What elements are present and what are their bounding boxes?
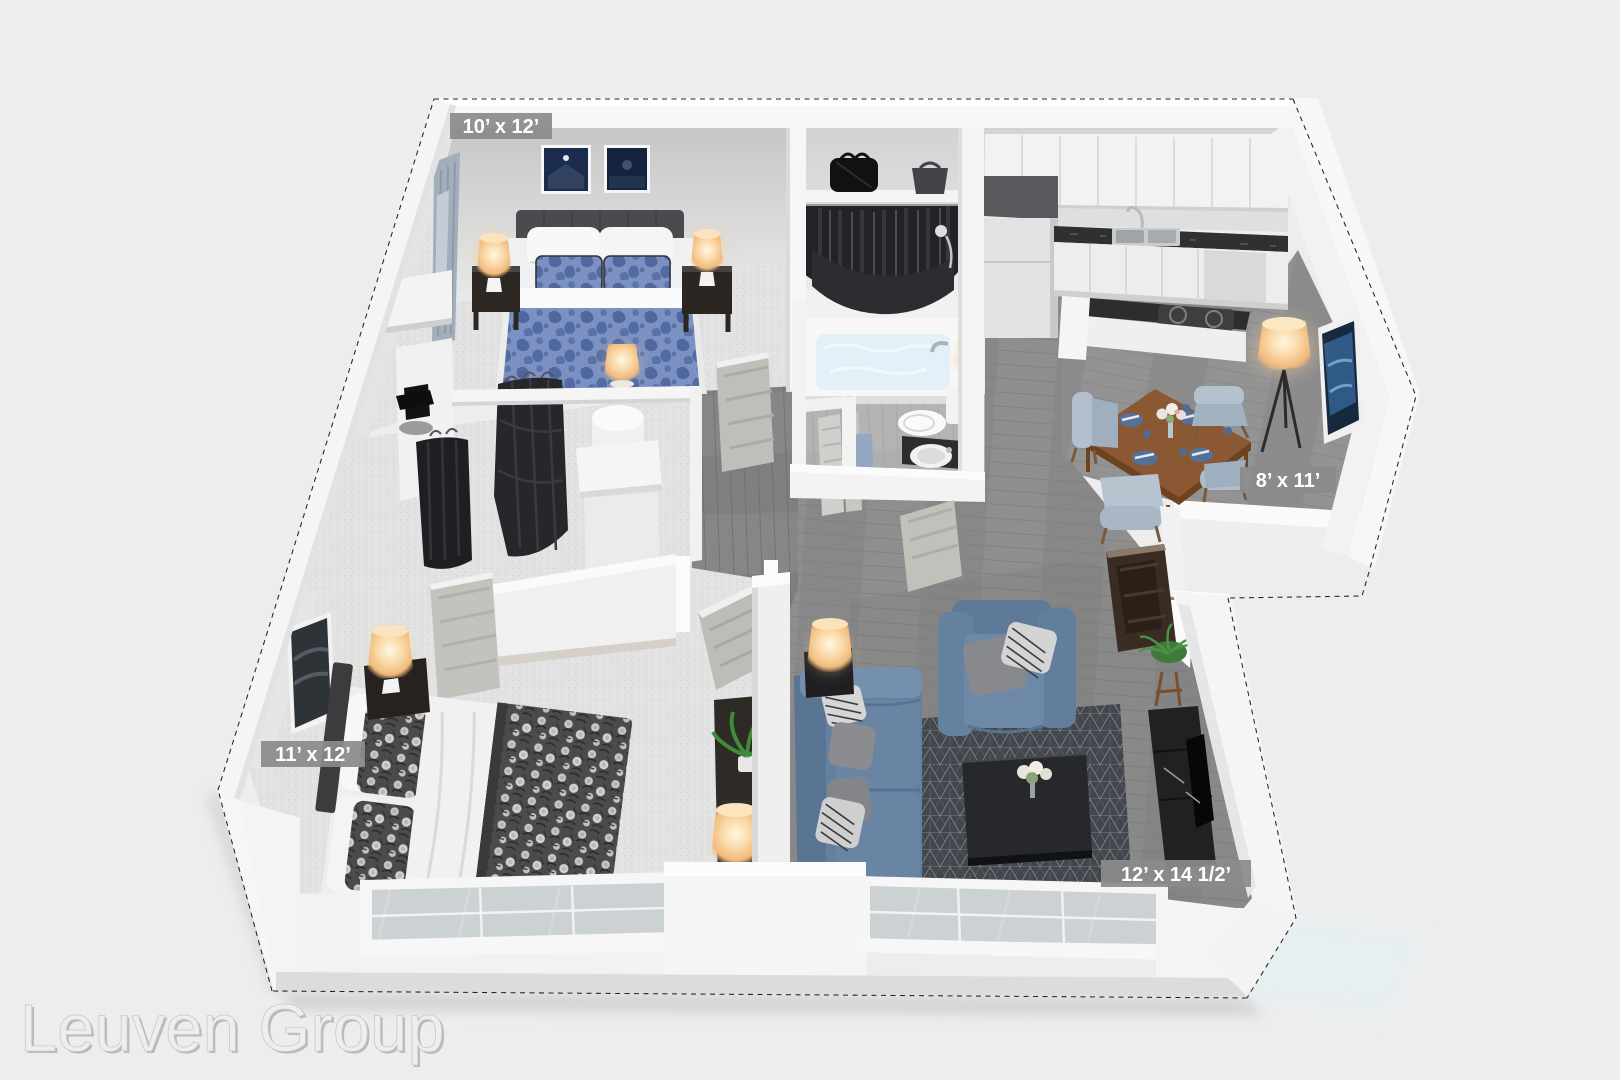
svg-text:10’ x 12’: 10’ x 12’ (463, 116, 540, 138)
svg-text:8’ x 11’: 8’ x 11’ (1256, 470, 1321, 492)
svg-text:12’ x 14 1/2’: 12’ x 14 1/2’ (1121, 864, 1231, 886)
svg-text:Leuven Group: Leuven Group (20, 991, 445, 1066)
svg-text:11’ x 12’: 11’ x 12’ (275, 744, 351, 766)
